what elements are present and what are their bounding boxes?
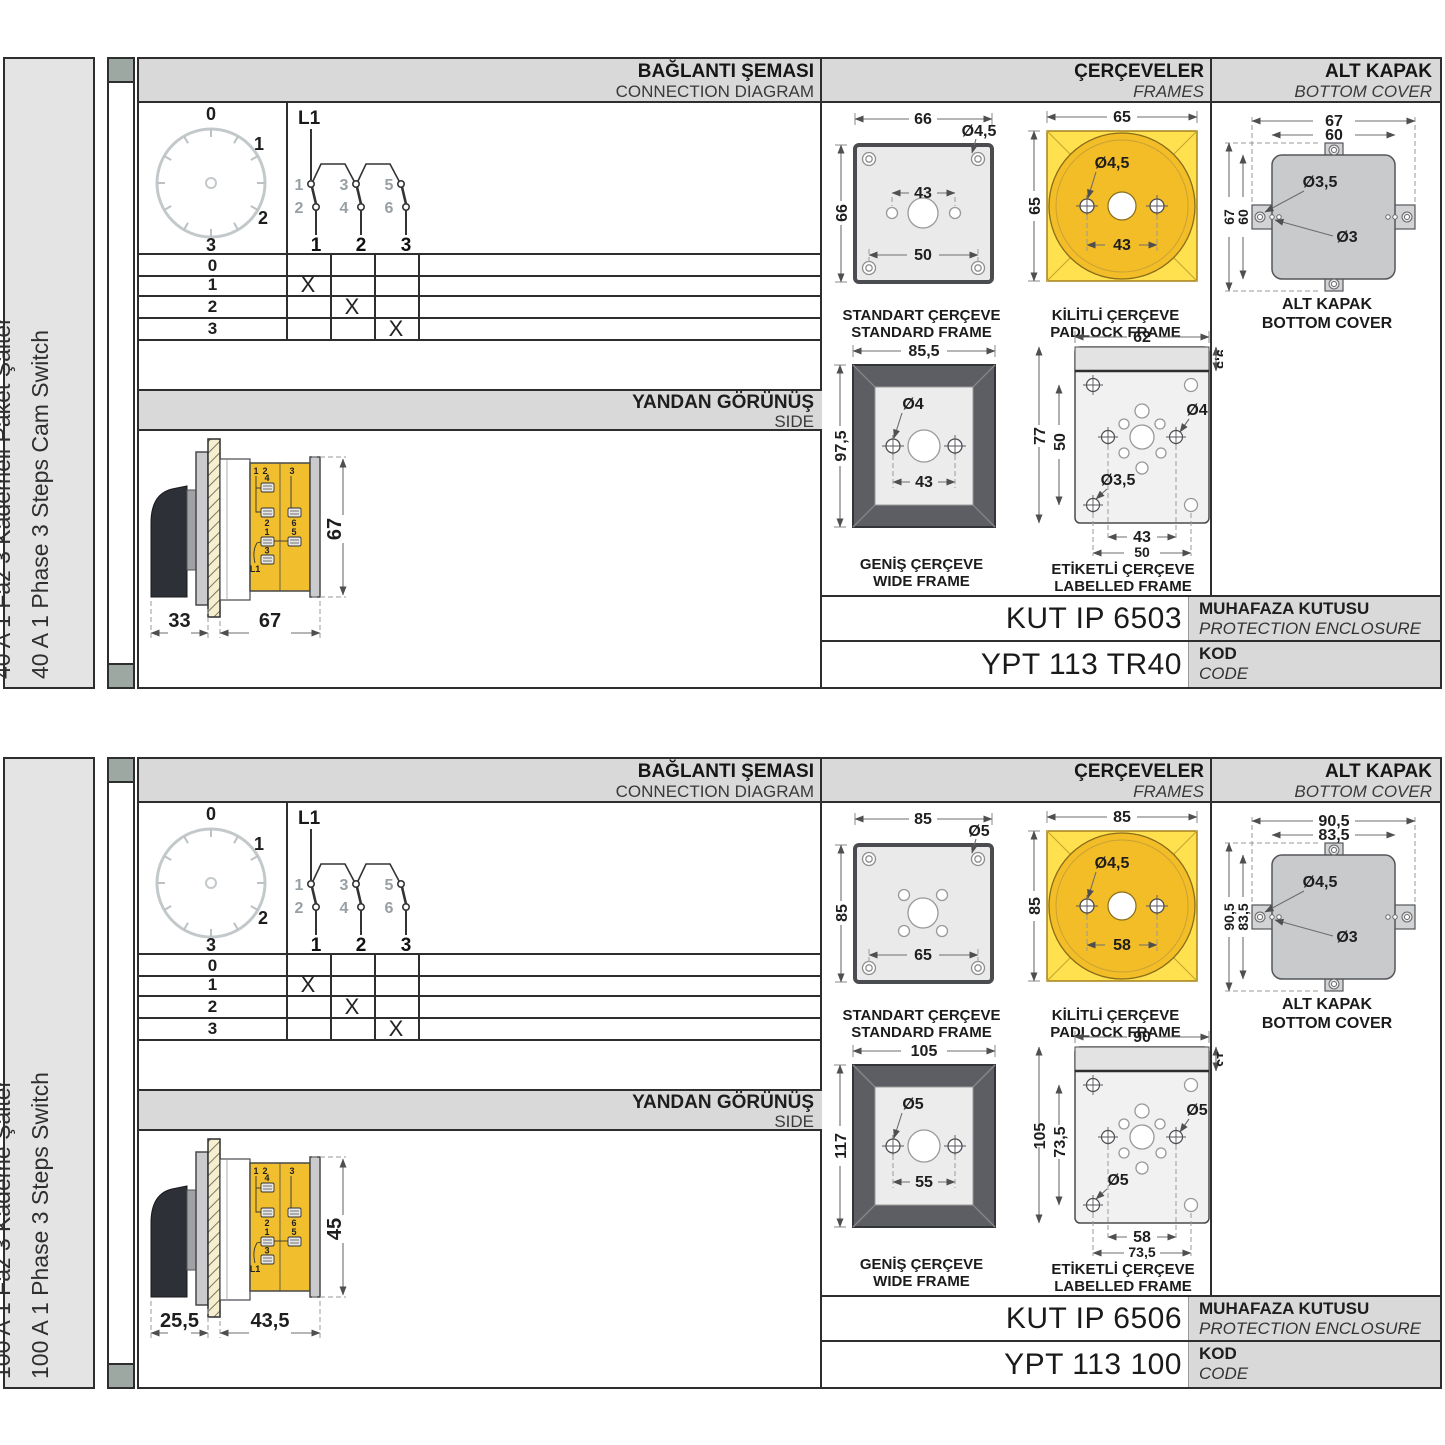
contact-num-3: 3: [340, 877, 349, 894]
row-mark: X: [286, 975, 330, 994]
dim-padlock-hole: Ø4,5: [1095, 855, 1130, 872]
header-bottom-cover: ALT KAPAK BOTTOM COVER: [1212, 59, 1440, 103]
enclosure-row: KUT IP 6506 MUHAFAZA KUTUSU PROTECTION E…: [822, 1295, 1440, 1340]
terminal-label: 1: [264, 1227, 269, 1237]
terminal-label: L1: [250, 564, 261, 574]
labelled-frame-caption: ETİKETLİ ÇERÇEVE LABELLED FRAME: [1023, 1261, 1223, 1295]
padlock-frame-block: Ø4,5 58 85 85 KİLİTLİ ÇERÇEVE: [1023, 805, 1208, 1041]
dim-std-mid: 43: [914, 185, 932, 202]
caption-tr: KİLİTLİ ÇERÇEVE: [1023, 1007, 1208, 1024]
labelled-frame-drawing: 62 9,5 77 50 Ø4 Ø3,5 43: [1023, 327, 1223, 559]
dim-wide-height: 117: [833, 1133, 850, 1159]
table-row: 0: [139, 953, 822, 977]
dial-pos-0: 0: [206, 104, 216, 124]
spine-cap-bottom: [107, 663, 135, 689]
standard-frame-block: 85 Ø5 85 65 STANDART ÇERÇEVE STANDARD FR…: [829, 805, 1014, 1041]
dim-labelled-height: 105: [1032, 1123, 1049, 1150]
dial-pos-3: 3: [206, 235, 216, 253]
labelled-frame-caption: ETİKETLİ ÇERÇEVE LABELLED FRAME: [1023, 561, 1223, 595]
back-plate: [310, 1157, 320, 1297]
caption-en: LABELLED FRAME: [1023, 578, 1223, 595]
dim-labelled-hole-corner: Ø5: [1107, 1172, 1128, 1189]
pole-label-3: 3: [401, 935, 412, 953]
code-label: KOD CODE: [1188, 1342, 1440, 1387]
code-row: YPT 113 TR40 KOD CODE: [822, 640, 1440, 687]
front-plate: [196, 452, 208, 605]
terminal-label: 4: [264, 473, 269, 483]
dial-pos-0: 0: [206, 804, 216, 824]
pole-label-2: 2: [356, 935, 367, 953]
product-code: YPT 113 100: [822, 1342, 1184, 1387]
dim-labelled-hole-mid: Ø4: [1186, 402, 1207, 419]
row-mark: X: [330, 297, 374, 316]
table-row: 2 X: [139, 997, 822, 1019]
dial-pos-2: 2: [258, 908, 268, 928]
dim-padlock-span: 58: [1113, 937, 1131, 954]
caption-tr: GENİŞ ÇERÇEVE: [829, 1256, 1014, 1273]
binding-spine: [107, 57, 135, 689]
header-frames-tr: ÇERÇEVELER: [822, 61, 1204, 82]
standard-frame-caption: STANDART ÇERÇEVE STANDARD FRAME: [829, 307, 1014, 341]
header-cover-tr: ALT KAPAK: [1212, 761, 1432, 782]
padlock-frame-drawing: Ø4,5 43 65 65: [1023, 105, 1208, 305]
contact-num-2: 2: [295, 900, 304, 917]
wide-frame-drawing: Ø4 43 85,5 97,5: [829, 339, 1014, 554]
dim-side-height: 45: [324, 1218, 346, 1240]
caption-en: BOTTOM COVER: [1217, 1014, 1437, 1033]
terminal-label: 1: [253, 466, 258, 476]
dim-labelled-strip: 13: [1214, 1051, 1223, 1067]
header-connection-en: CONNECTION DIAGRAM: [139, 82, 814, 101]
wide-frame-caption: GENİŞ ÇERÇEVE WIDE FRAME: [829, 1256, 1014, 1290]
code-label-tr: KOD: [1199, 1344, 1440, 1364]
header-side-tr: YANDAN GÖRÜNÜŞ: [139, 392, 814, 413]
caption-tr: ALT KAPAK: [1217, 995, 1437, 1014]
header-cover-tr: ALT KAPAK: [1212, 61, 1432, 82]
contact-num-6: 6: [385, 200, 394, 217]
dim-cover-hole-big: Ø4,5: [1303, 874, 1338, 891]
product-panel: 40 A 1 Faz 3 Kademeli Paket Şalter 40 A …: [0, 57, 1445, 689]
circuit-source-label: L1: [298, 108, 321, 129]
code-label-en: CODE: [1199, 664, 1440, 683]
dim-side-front: 25,5: [160, 1310, 199, 1332]
wide-frame-caption: GENİŞ ÇERÇEVE WIDE FRAME: [829, 556, 1014, 590]
table-row: 1 X: [139, 275, 822, 297]
switch-position-dial: 0 1 2 3: [139, 103, 286, 253]
enclosure-label-en: PROTECTION ENCLOSURE: [1199, 1319, 1440, 1338]
row-mark: X: [374, 319, 418, 338]
circuit-source-label: L1: [298, 808, 321, 829]
dim-side-height: 67: [324, 518, 346, 540]
enclosure-label-tr: MUHAFAZA KUTUSU: [1199, 1299, 1440, 1319]
bottom-cover-block: 67 60 67 60 Ø3,5 Ø3 ALT KAPAK BOTTOM COV: [1217, 111, 1437, 333]
terminal-label: 3: [289, 1166, 294, 1176]
mounting-panel: [208, 1139, 220, 1317]
dim-labelled-inner: 73,5: [1052, 1126, 1069, 1157]
product-title-turkish: 100 A 1 Faz 3 Kademe Şalter: [0, 1080, 15, 1379]
product-panel: 100 A 1 Faz 3 Kademe Şalter 100 A 1 Phas…: [0, 757, 1445, 1389]
caption-tr: GENİŞ ÇERÇEVE: [829, 556, 1014, 573]
pole-label-2: 2: [356, 235, 367, 253]
wide-frame-block: Ø4 43 85,5 97,5 GENİŞ ÇERÇEVE: [829, 339, 1014, 590]
connection-circuit-diagram: L1 1 2 3 4 5 6 1 2 3: [288, 803, 820, 953]
dim-wide-width: 105: [911, 1043, 938, 1060]
dim-cover-inner-h: 83,5: [1235, 903, 1251, 930]
product-title-strip: 40 A 1 Faz 3 Kademeli Paket Şalter 40 A …: [3, 57, 95, 689]
dim-std-bottom: 50: [914, 247, 932, 264]
dim-labelled-strip: 9,5: [1214, 349, 1223, 369]
standard-frame-drawing: 43 66 Ø4,5 66: [829, 105, 1014, 305]
dim-padlock-hole: Ø4,5: [1095, 155, 1130, 172]
labelled-frame-block: 90 13 105 73,5 Ø5 Ø5 58: [1023, 1027, 1223, 1295]
header-side-en: SIDE: [139, 1113, 814, 1131]
row-position: 3: [139, 319, 286, 339]
header-side-view: YANDAN GÖRÜNÜŞ SIDE: [139, 389, 822, 431]
caption-en: WIDE FRAME: [829, 1273, 1014, 1290]
labelled-frame-drawing: 90 13 105 73,5 Ø5 Ø5 58: [1023, 1027, 1223, 1259]
dim-side-front: 33: [168, 610, 190, 632]
dim-padlock-width: 65: [1113, 109, 1131, 126]
table-row: 3 X: [139, 319, 822, 341]
terminal-label: 3: [289, 466, 294, 476]
bottom-cover-caption: ALT KAPAK BOTTOM COVER: [1217, 995, 1437, 1033]
mounting-panel: [208, 439, 220, 617]
dim-padlock-height: 65: [1027, 197, 1044, 215]
terminal-label: 1: [253, 1166, 258, 1176]
padlock-frame-drawing: Ø4,5 58 85 85: [1023, 805, 1208, 1005]
row-position: 0: [139, 255, 286, 277]
row-position: 3: [139, 1019, 286, 1039]
dim-std-hole: Ø4,5: [962, 123, 997, 140]
bottom-cover-caption: ALT KAPAK BOTTOM COVER: [1217, 295, 1437, 333]
contact-num-6: 6: [385, 900, 394, 917]
dim-wide-hole: Ø5: [902, 1096, 923, 1113]
enclosure-row: KUT IP 6503 MUHAFAZA KUTUSU PROTECTION E…: [822, 595, 1440, 640]
dim-std-bottom: 65: [914, 947, 932, 964]
pole-label-3: 3: [401, 235, 412, 253]
bottom-cover-drawing: 90,5 83,5 90,5 83,5 Ø4,5 Ø3: [1217, 811, 1437, 993]
caption-en: BOTTOM COVER: [1217, 314, 1437, 333]
terminal-label: L1: [250, 1264, 261, 1274]
header-side-tr: YANDAN GÖRÜNÜŞ: [139, 1092, 814, 1113]
dim-labelled-hole-corner: Ø3,5: [1101, 472, 1136, 489]
contact-num-1: 1: [295, 877, 304, 894]
caption-en: LABELLED FRAME: [1023, 1278, 1223, 1295]
table-row: 2 X: [139, 297, 822, 319]
dim-cover-inner-h: 60: [1235, 209, 1251, 225]
terminal-label: 5: [291, 527, 296, 537]
dim-labelled-span-corner: 50: [1134, 544, 1150, 559]
padlock-frame-block: Ø4,5 43 65 65 KİLİTLİ ÇERÇEVE: [1023, 105, 1208, 341]
dim-labelled-span-corner: 73,5: [1128, 1244, 1155, 1259]
connection-circuit-diagram: L1 1 2 3 4 5 6 1 2 3: [288, 103, 820, 253]
enclosure-code: KUT IP 6503: [822, 597, 1184, 640]
row-mark: X: [374, 1019, 418, 1038]
row-position: 1: [139, 975, 286, 995]
standard-frame-caption: STANDART ÇERÇEVE STANDARD FRAME: [829, 1007, 1014, 1041]
dial-pos-1: 1: [254, 834, 264, 854]
dim-std-hole: Ø5: [968, 823, 989, 840]
code-label: KOD CODE: [1188, 642, 1440, 687]
enclosure-code: KUT IP 6506: [822, 1297, 1184, 1340]
dim-std-width: 85: [914, 811, 932, 828]
dim-labelled-width: 90: [1133, 1029, 1151, 1046]
dim-cover-inner-w: 83,5: [1318, 827, 1349, 844]
header-cover-en: BOTTOM COVER: [1212, 782, 1432, 801]
switch-handle: [151, 486, 187, 597]
header-frames: ÇERÇEVELER FRAMES: [822, 59, 1212, 103]
back-plate: [310, 457, 320, 597]
standard-frame-drawing: 85 Ø5 85 65: [829, 805, 1014, 1005]
dim-std-width: 66: [914, 111, 932, 128]
dial-pos-3: 3: [206, 935, 216, 953]
dim-side-body: 43,5: [251, 1310, 290, 1332]
bottom-cover-drawing: 67 60 67 60 Ø3,5 Ø3: [1217, 111, 1437, 293]
contact-num-4: 4: [340, 900, 349, 917]
catalog-page: 40 A 1 Faz 3 Kademeli Paket Şalter 40 A …: [0, 0, 1445, 1445]
header-frames: ÇERÇEVELER FRAMES: [822, 759, 1212, 803]
header-connection-tr: BAĞLANTI ŞEMASI: [139, 61, 814, 82]
pole-label-1: 1: [311, 235, 322, 253]
table-row: 0: [139, 253, 822, 277]
datasheet-body: BAĞLANTI ŞEMASI CONNECTION DIAGRAM ÇERÇE…: [137, 757, 1442, 1389]
table-row: 1 X: [139, 975, 822, 997]
dim-cover-inner-w: 60: [1325, 127, 1343, 144]
dim-labelled-width: 62: [1133, 329, 1151, 346]
contact-num-2: 2: [295, 200, 304, 217]
dim-padlock-span: 43: [1113, 237, 1131, 254]
product-title-strip: 100 A 1 Faz 3 Kademe Şalter 100 A 1 Phas…: [3, 757, 95, 1389]
contact-num-3: 3: [340, 177, 349, 194]
pole-label-1: 1: [311, 935, 322, 953]
row-mark: X: [286, 275, 330, 294]
dim-wide-height: 97,5: [833, 430, 850, 461]
product-title-english: 40 A 1 Phase 3 Steps Cam Switch: [27, 330, 53, 679]
side-view-drawing: 1 2 3 4 2 6 1 5 3 L1 45 25,5 43,5: [139, 1131, 822, 1387]
header-frames-en: FRAMES: [822, 82, 1204, 101]
datasheet-body: BAĞLANTI ŞEMASI CONNECTION DIAGRAM ÇERÇE…: [137, 57, 1442, 689]
switch-handle: [151, 1186, 187, 1297]
terminal-label: 3: [264, 1246, 269, 1256]
dim-cover-hole-small: Ø3: [1336, 229, 1357, 246]
caption-tr: ALT KAPAK: [1217, 295, 1437, 314]
spine-cap-top: [107, 757, 135, 783]
product-title-turkish: 40 A 1 Faz 3 Kademeli Paket Şalter: [0, 317, 15, 679]
row-position: 0: [139, 955, 286, 977]
header-connection-en: CONNECTION DIAGRAM: [139, 782, 814, 801]
header-frames-tr: ÇERÇEVELER: [822, 761, 1204, 782]
code-label-en: CODE: [1199, 1364, 1440, 1383]
labelled-frame-block: 62 9,5 77 50 Ø4 Ø3,5 43: [1023, 327, 1223, 595]
contact-num-1: 1: [295, 177, 304, 194]
header-connection-tr: BAĞLANTI ŞEMASI: [139, 761, 814, 782]
dim-wide-width: 85,5: [908, 343, 939, 360]
dim-side-body: 67: [259, 610, 281, 632]
contact-num-4: 4: [340, 200, 349, 217]
caption-tr: ETİKETLİ ÇERÇEVE: [1023, 561, 1223, 578]
header-connection-diagram: BAĞLANTI ŞEMASI CONNECTION DIAGRAM: [139, 59, 822, 103]
contact-num-5: 5: [385, 877, 394, 894]
row-mark: X: [330, 997, 374, 1016]
dim-std-height: 85: [834, 904, 851, 922]
spine-cap-bottom: [107, 1363, 135, 1389]
row-position: 2: [139, 997, 286, 1017]
dim-labelled-hole-mid: Ø5: [1186, 1102, 1207, 1119]
dial-pos-2: 2: [258, 208, 268, 228]
row-position: 2: [139, 297, 286, 317]
product-title-english: 100 A 1 Phase 3 Steps Switch: [27, 1072, 53, 1379]
enclosure-label-en: PROTECTION ENCLOSURE: [1199, 619, 1440, 638]
dim-cover-hole-big: Ø3,5: [1303, 174, 1338, 191]
spine-cap-top: [107, 57, 135, 83]
row-position: 1: [139, 275, 286, 295]
front-plate: [196, 1152, 208, 1305]
terminal-label: 5: [291, 1227, 296, 1237]
header-connection-diagram: BAĞLANTI ŞEMASI CONNECTION DIAGRAM: [139, 759, 822, 803]
dim-cover-hole-small: Ø3: [1336, 929, 1357, 946]
wide-frame-drawing: Ø5 55 105 117: [829, 1039, 1014, 1254]
product-code: YPT 113 TR40: [822, 642, 1184, 687]
code-label-tr: KOD: [1199, 644, 1440, 664]
header-bottom-cover: ALT KAPAK BOTTOM COVER: [1212, 759, 1440, 803]
caption-tr: ETİKETLİ ÇERÇEVE: [1023, 1261, 1223, 1278]
contact-num-5: 5: [385, 177, 394, 194]
enclosure-label: MUHAFAZA KUTUSU PROTECTION ENCLOSURE: [1188, 597, 1440, 640]
binding-spine: [107, 757, 135, 1389]
dim-wide-hole: Ø4: [902, 396, 923, 413]
header-frames-en: FRAMES: [822, 782, 1204, 801]
dim-std-height: 66: [834, 204, 851, 222]
table-row: 3 X: [139, 1019, 822, 1041]
wide-frame-block: Ø5 55 105 117 GENİŞ ÇERÇEVE W: [829, 1039, 1014, 1290]
terminal-label: 1: [264, 527, 269, 537]
enclosure-label: MUHAFAZA KUTUSU PROTECTION ENCLOSURE: [1188, 1297, 1440, 1340]
dim-wide-span: 43: [915, 474, 933, 491]
dim-labelled-inner: 50: [1052, 433, 1069, 451]
header-side-view: YANDAN GÖRÜNÜŞ SIDE: [139, 1089, 822, 1131]
header-side-en: SIDE: [139, 413, 814, 431]
switch-position-dial: 0 1 2 3: [139, 803, 286, 953]
terminal-label: 3: [264, 546, 269, 556]
side-view-drawing: 1 2 3 4 2 6 1 5 3 L1 67 33 67: [139, 431, 822, 687]
dim-wide-span: 55: [915, 1174, 933, 1191]
code-row: YPT 113 100 KOD CODE: [822, 1340, 1440, 1387]
bottom-cover-block: 90,5 83,5 90,5 83,5 Ø4,5 Ø3 ALT KAPAK BO: [1217, 811, 1437, 1033]
enclosure-label-tr: MUHAFAZA KUTUSU: [1199, 599, 1440, 619]
dial-pos-1: 1: [254, 134, 264, 154]
dim-labelled-height: 77: [1032, 427, 1049, 445]
caption-en: WIDE FRAME: [829, 573, 1014, 590]
dim-padlock-width: 85: [1113, 809, 1131, 826]
terminal-label: 4: [264, 1173, 269, 1183]
caption-tr: STANDART ÇERÇEVE: [829, 1007, 1014, 1024]
dim-padlock-height: 85: [1027, 897, 1044, 915]
caption-tr: KİLİTLİ ÇERÇEVE: [1023, 307, 1208, 324]
header-cover-en: BOTTOM COVER: [1212, 82, 1432, 101]
caption-tr: STANDART ÇERÇEVE: [829, 307, 1014, 324]
standard-frame-block: 43 66 Ø4,5 66: [829, 105, 1014, 341]
